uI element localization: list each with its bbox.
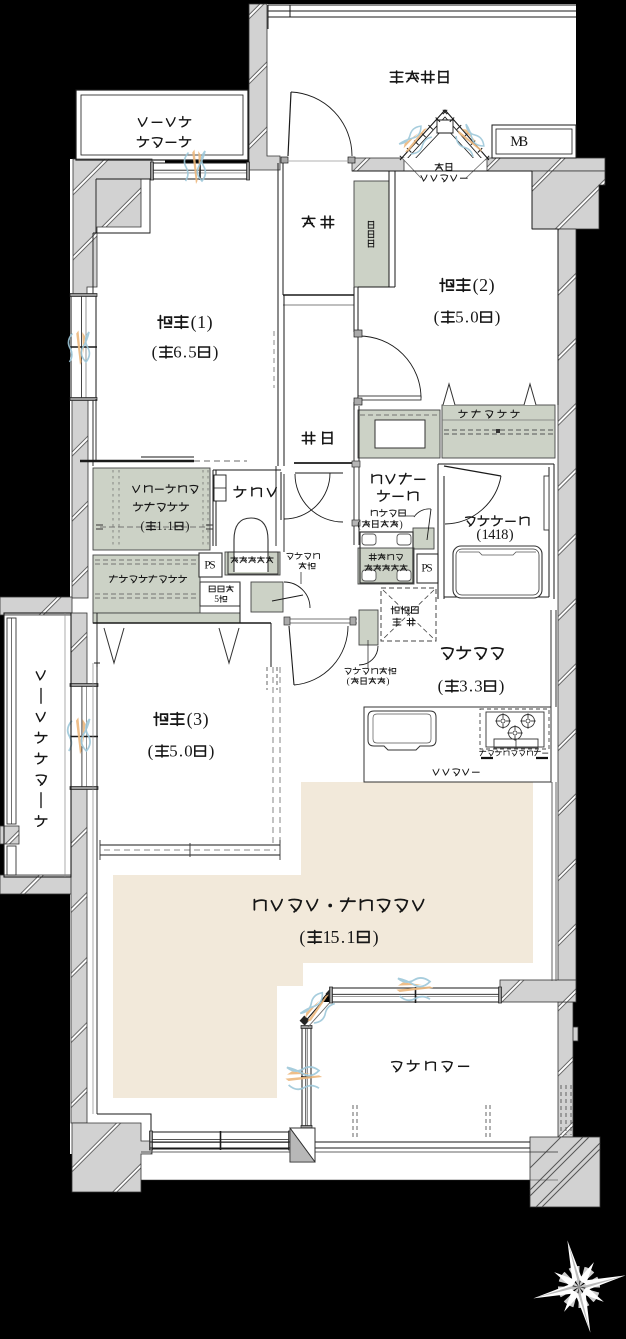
svg-text:): ) (209, 742, 215, 761)
svg-text:.: . (465, 308, 469, 327)
svg-text:5: 5 (214, 595, 219, 605)
svg-text:8: 8 (501, 527, 508, 543)
svg-text:5: 5 (188, 343, 196, 362)
svg-text:S: S (209, 560, 215, 572)
svg-text:): ) (185, 519, 189, 533)
svg-text:0: 0 (184, 742, 192, 761)
svg-text:3: 3 (459, 677, 467, 696)
svg-text:1: 1 (197, 312, 206, 332)
svg-text:0: 0 (470, 308, 478, 327)
svg-text:6: 6 (173, 343, 181, 362)
svg-text:(: ( (152, 343, 158, 362)
svg-text:(: ( (347, 676, 350, 687)
svg-text:.: . (469, 677, 473, 696)
svg-text:(: ( (187, 709, 193, 730)
svg-text:2: 2 (479, 275, 488, 295)
svg-text:3: 3 (193, 709, 202, 729)
svg-text:): ) (495, 308, 501, 327)
svg-text:(: ( (434, 308, 440, 327)
svg-text:5: 5 (331, 927, 340, 947)
svg-text:(: ( (191, 312, 197, 333)
svg-text:): ) (213, 343, 219, 362)
svg-text:1: 1 (167, 519, 173, 533)
svg-text:1: 1 (156, 519, 162, 533)
svg-text:5: 5 (169, 742, 177, 761)
svg-text:B: B (518, 134, 528, 150)
svg-text:.: . (183, 343, 187, 362)
svg-text:): ) (373, 927, 379, 948)
svg-text:5: 5 (455, 308, 463, 327)
svg-text:(: ( (299, 927, 305, 948)
svg-text:.: . (341, 927, 345, 947)
svg-text:(: ( (148, 742, 154, 761)
svg-text:): ) (207, 312, 213, 333)
svg-text:.: . (179, 742, 183, 761)
svg-text:): ) (386, 676, 389, 687)
svg-text:(: ( (438, 677, 444, 696)
svg-text:): ) (399, 519, 402, 530)
svg-text:(: ( (141, 519, 145, 533)
svg-text:): ) (489, 275, 495, 296)
svg-text:): ) (499, 677, 505, 696)
svg-text:S: S (426, 563, 432, 575)
svg-text:1: 1 (347, 927, 356, 947)
svg-text:): ) (509, 527, 514, 543)
svg-text:(: ( (473, 275, 479, 296)
svg-text:): ) (203, 709, 209, 730)
svg-text:3: 3 (474, 677, 482, 696)
svg-text:.: . (163, 519, 166, 533)
